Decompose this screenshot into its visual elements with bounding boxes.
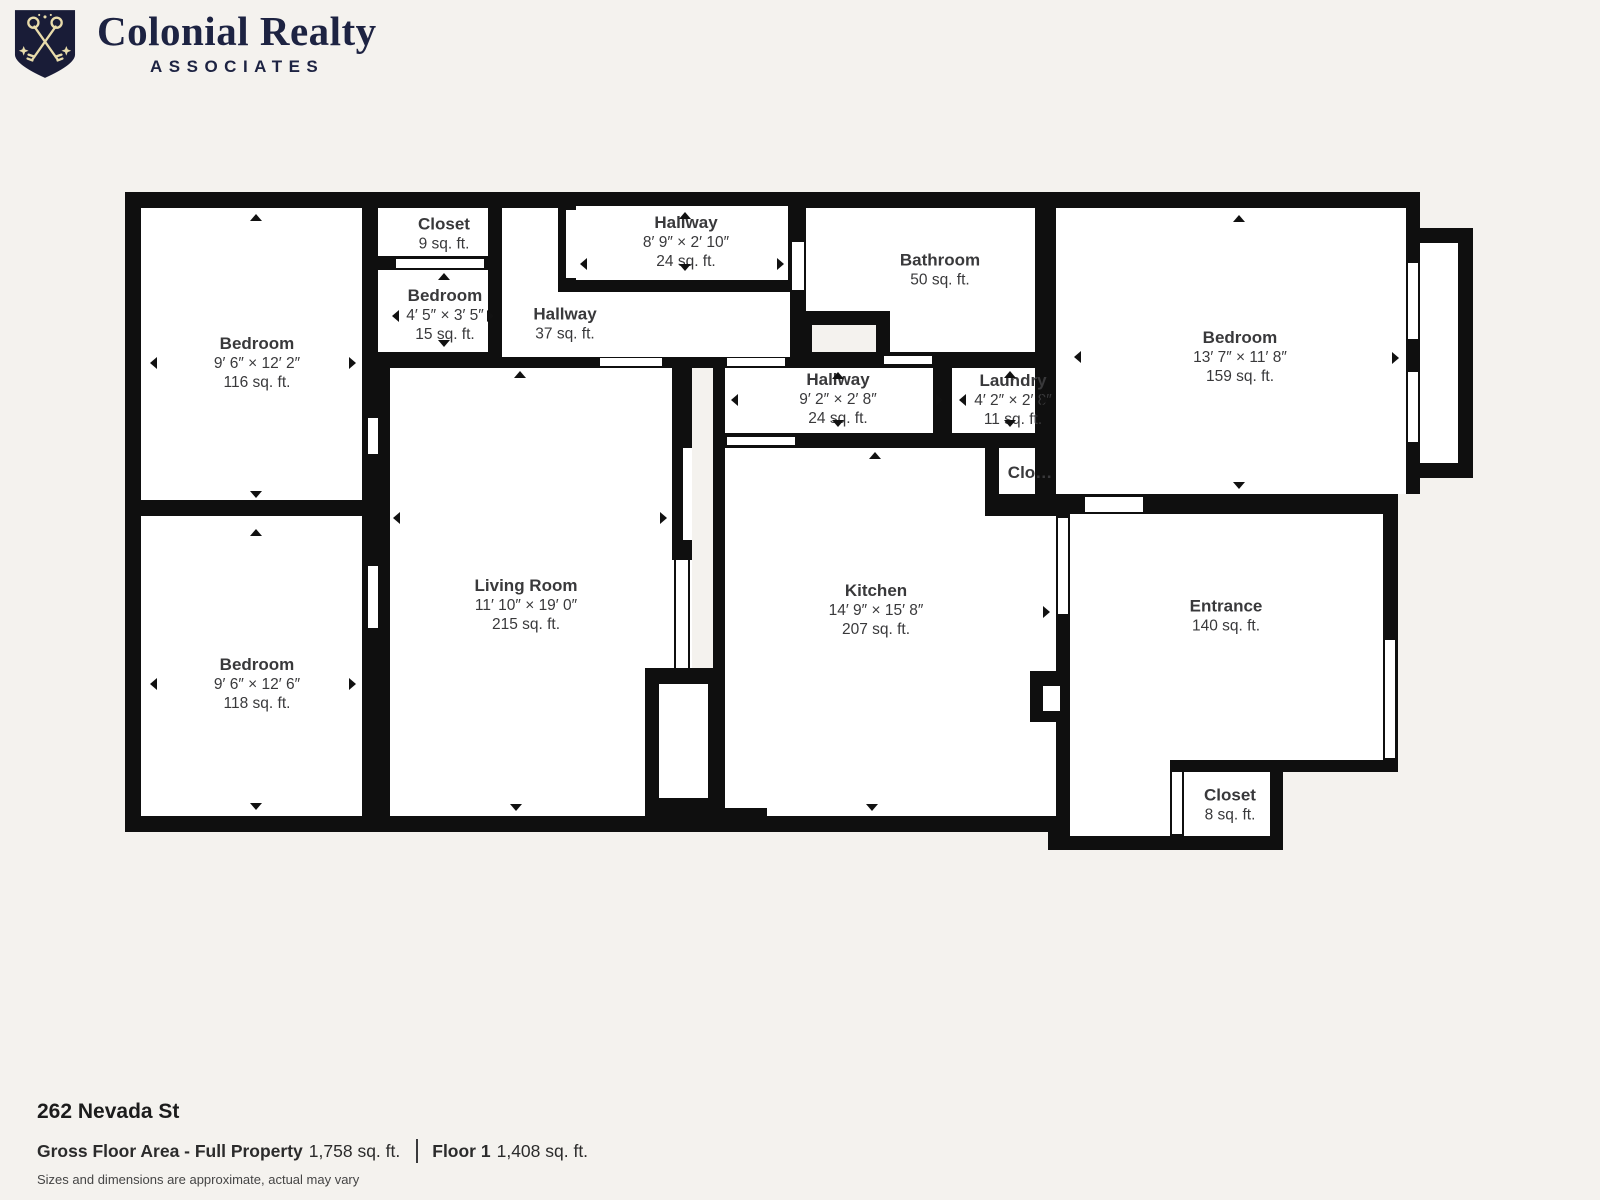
property-address: 262 Nevada St xyxy=(37,1100,594,1124)
room-name: Entrance xyxy=(1190,597,1263,617)
void-area xyxy=(692,368,713,668)
room-label-livingroom-11: Living Room11′ 10″ × 19′ 0″215 sq. ft. xyxy=(475,576,578,634)
wall xyxy=(713,368,725,668)
floor-area xyxy=(396,259,484,268)
room-label-hallway-4: Hallway8′ 9″ × 2′ 10″24 sq. ft. xyxy=(643,213,729,271)
arrow-down-icon xyxy=(250,491,262,498)
room-name: Bathroom xyxy=(900,251,980,271)
arrow-down-icon xyxy=(438,340,450,347)
room-dims: 11′ 10″ × 19′ 0″ xyxy=(475,596,578,615)
room-dims: 9′ 2″ × 2′ 8″ xyxy=(799,390,877,409)
room-area: 50 sq. ft. xyxy=(900,271,980,290)
arrow-down-icon xyxy=(679,264,691,271)
void-area xyxy=(812,325,876,352)
room-area: 207 sq. ft. xyxy=(829,620,924,639)
arrow-up-icon xyxy=(832,372,844,379)
room-name: Living Room xyxy=(475,576,578,596)
disclaimer-text: Sizes and dimensions are approximate, ac… xyxy=(37,1172,594,1187)
floor-area xyxy=(683,448,692,540)
room-label-kitchen-12: Kitchen14′ 9″ × 15′ 8″207 sq. ft. xyxy=(829,581,924,639)
arrow-down-icon xyxy=(1233,482,1245,489)
arrow-left-icon xyxy=(1074,351,1081,363)
floor-area xyxy=(1043,686,1060,711)
floor-area xyxy=(1058,518,1068,614)
floor-value: 1,408 sq. ft. xyxy=(497,1141,588,1162)
room-dims: 9′ 6″ × 12′ 2″ xyxy=(214,354,300,373)
room-label-closet-14: Closet8 sq. ft. xyxy=(1204,786,1256,825)
floor-area xyxy=(600,358,662,366)
room-name: Bedroom xyxy=(214,655,300,675)
arrow-right-icon xyxy=(1041,394,1048,406)
floor-area xyxy=(368,418,378,454)
floor-area xyxy=(792,242,804,290)
room-label-bedroom-0: Bedroom9′ 6″ × 12′ 2″116 sq. ft. xyxy=(214,334,300,392)
room-name: Bedroom xyxy=(214,334,300,354)
arrow-down-icon xyxy=(832,420,844,427)
arrow-left-icon xyxy=(150,678,157,690)
room-area: 8 sq. ft. xyxy=(1204,806,1256,825)
arrow-up-icon xyxy=(869,452,881,459)
wall xyxy=(949,368,952,433)
floor-area xyxy=(1385,640,1395,758)
arrow-right-icon xyxy=(487,310,494,322)
arrow-down-icon xyxy=(510,804,522,811)
arrow-left-icon xyxy=(580,258,587,270)
room-name: Clo… xyxy=(1008,463,1052,483)
floor-area xyxy=(1408,372,1418,442)
room-name: Hallway xyxy=(533,305,596,325)
room-label-entrance-13: Entrance140 sq. ft. xyxy=(1190,597,1263,636)
arrow-right-icon xyxy=(936,394,943,406)
floor-area xyxy=(1408,263,1418,339)
arrow-down-icon xyxy=(250,803,262,810)
arrow-left-icon xyxy=(731,394,738,406)
room-label-clo-9: Clo… xyxy=(1008,463,1052,483)
arrow-right-icon xyxy=(1392,352,1399,364)
floor-area xyxy=(659,684,708,798)
room-name: Bedroom xyxy=(406,286,484,306)
floor-area xyxy=(1085,497,1143,512)
gross-floor-area-label: Gross Floor Area - Full Property xyxy=(37,1141,303,1162)
floor-area-summary: Gross Floor Area - Full Property 1,758 s… xyxy=(37,1139,594,1163)
arrow-up-icon xyxy=(1004,371,1016,378)
room-area: 118 sq. ft. xyxy=(214,694,300,713)
wall xyxy=(710,808,767,832)
room-name: Bedroom xyxy=(1193,328,1287,348)
wall xyxy=(688,560,690,668)
arrow-up-icon xyxy=(438,273,450,280)
floor-area xyxy=(884,356,932,364)
room-label-bedroom-1: Bedroom9′ 6″ × 12′ 6″118 sq. ft. xyxy=(214,655,300,713)
floor-area xyxy=(727,358,785,366)
room-dims: 9′ 6″ × 12′ 6″ xyxy=(214,675,300,694)
room-name: Kitchen xyxy=(829,581,924,601)
room-label-bedroom-10: Bedroom13′ 7″ × 11′ 8″159 sq. ft. xyxy=(1193,328,1287,386)
arrow-right-icon xyxy=(349,357,356,369)
floorplan: Bedroom9′ 6″ × 12′ 2″116 sq. ft.Bedroom9… xyxy=(0,0,1600,1200)
room-label-hallway-5: Hallway37 sq. ft. xyxy=(533,305,596,344)
floor-area xyxy=(727,437,795,445)
arrow-up-icon xyxy=(514,371,526,378)
floor-area xyxy=(1070,760,1170,836)
room-area: 159 sq. ft. xyxy=(1193,367,1287,386)
room-label-closet-2: Closet9 sq. ft. xyxy=(418,215,470,254)
room-name: Closet xyxy=(1204,786,1256,806)
floor-area xyxy=(1172,772,1182,834)
arrow-right-icon xyxy=(1043,606,1050,618)
arrow-up-icon xyxy=(250,529,262,536)
room-dims: 13′ 7″ × 11′ 8″ xyxy=(1193,348,1287,367)
arrow-down-icon xyxy=(866,804,878,811)
room-label-bathroom-6: Bathroom50 sq. ft. xyxy=(900,251,980,290)
room-label-bedroom-3: Bedroom4′ 5″ × 3′ 5″15 sq. ft. xyxy=(406,286,484,344)
floor-area xyxy=(1070,514,1383,760)
room-area: 140 sq. ft. xyxy=(1190,617,1263,636)
gross-floor-area-value: 1,758 sq. ft. xyxy=(309,1141,400,1162)
room-area: 9 sq. ft. xyxy=(418,235,470,254)
arrow-left-icon xyxy=(392,310,399,322)
room-area: 215 sq. ft. xyxy=(475,615,578,634)
room-area: 116 sq. ft. xyxy=(214,373,300,392)
divider xyxy=(416,1139,418,1163)
wall xyxy=(674,560,676,668)
floor-area xyxy=(368,566,378,628)
room-area: 37 sq. ft. xyxy=(533,325,596,344)
arrow-up-icon xyxy=(679,212,691,219)
arrow-left-icon xyxy=(393,512,400,524)
floor-label: Floor 1 xyxy=(432,1141,490,1162)
room-name: Closet xyxy=(418,215,470,235)
room-dims: 8′ 9″ × 2′ 10″ xyxy=(643,233,729,252)
plan-footer: 262 Nevada St Gross Floor Area - Full Pr… xyxy=(37,1100,594,1187)
arrow-right-icon xyxy=(349,678,356,690)
arrow-left-icon xyxy=(150,357,157,369)
room-dims: 14′ 9″ × 15′ 8″ xyxy=(829,601,924,620)
arrow-up-icon xyxy=(250,214,262,221)
arrow-right-icon xyxy=(660,512,667,524)
room-dims: 4′ 5″ × 3′ 5″ xyxy=(406,306,484,325)
floor-area xyxy=(566,210,576,278)
arrow-left-icon xyxy=(959,394,966,406)
arrow-up-icon xyxy=(1233,215,1245,222)
floor-area xyxy=(1420,243,1458,463)
arrow-right-icon xyxy=(777,258,784,270)
arrow-down-icon xyxy=(1004,420,1016,427)
